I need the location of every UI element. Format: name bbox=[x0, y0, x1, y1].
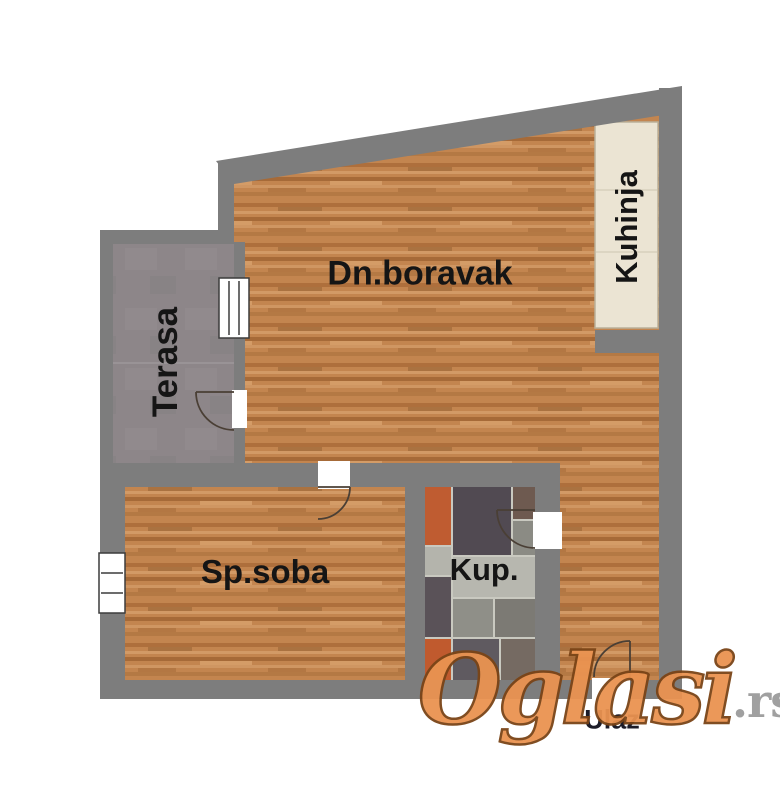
wall-right bbox=[659, 88, 682, 699]
wall-kitchen-stub bbox=[595, 330, 682, 353]
wall-terrace-living bbox=[234, 242, 245, 465]
room-label-living-room: Dn.boravak bbox=[327, 255, 512, 294]
room-label-bathroom: Kup. bbox=[450, 552, 519, 588]
watermark: Oglasi.rs bbox=[418, 642, 780, 738]
room-label-kitchen: Kuhinja bbox=[609, 170, 645, 284]
wall-terrace-top bbox=[100, 230, 234, 244]
room-label-terrace: Terasa bbox=[146, 307, 186, 417]
window-bedroom bbox=[99, 553, 125, 613]
floorplan-image: Dn.boravak Kuhinja Terasa Sp.soba Kup. U… bbox=[0, 0, 780, 800]
watermark-tld: .rs bbox=[732, 674, 780, 728]
window-living-terrace bbox=[219, 278, 249, 338]
room-label-bedroom: Sp.soba bbox=[201, 553, 329, 591]
watermark-brand: Oglasi bbox=[418, 633, 734, 746]
